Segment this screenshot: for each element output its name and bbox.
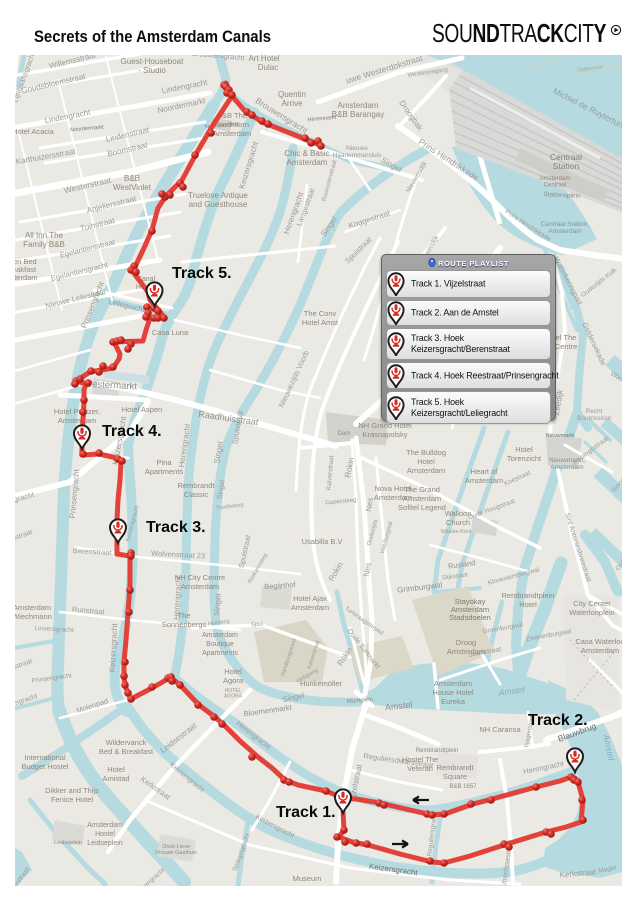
svg-text:Art Hotel: Art Hotel xyxy=(248,55,279,63)
svg-text:Museum: Museum xyxy=(293,874,322,883)
svg-text:WalloonChurch: WalloonChurch xyxy=(445,509,472,527)
svg-text:QuentinArrive: QuentinArrive xyxy=(278,90,306,108)
svg-text:Hotel Amst: Hotel Amst xyxy=(302,318,339,327)
svg-text:Hunkemöller: Hunkemöller xyxy=(300,679,343,688)
svg-text:Rembrandtplein: Rembrandtplein xyxy=(416,748,458,754)
svg-text:- Studio: - Studio xyxy=(138,66,166,75)
svg-text:Usabilla B.V: Usabilla B.V xyxy=(302,537,343,546)
svg-text:Guest-Houseboat: Guest-Houseboat xyxy=(121,57,184,66)
svg-text:Chic & BasicAmsterdam: Chic & BasicAmsterdam xyxy=(284,149,329,167)
svg-text:Track 4.: Track 4. xyxy=(102,423,162,440)
svg-text:StayokayAmsterdamStadsdoelen: StayokayAmsterdamStadsdoelen xyxy=(449,597,491,622)
svg-text:NH City CentreAmsterdam: NH City CentreAmsterdam xyxy=(175,573,225,591)
svg-text:AmsterdamCentraal: AmsterdamCentraal xyxy=(540,176,571,189)
svg-text:All Inn TheFamily B&B: All Inn TheFamily B&B xyxy=(23,231,65,249)
svg-text:Hotel Pulitzer,Amsterdam: Hotel Pulitzer,Amsterdam xyxy=(54,407,100,425)
svg-text:el TheCentre: el TheCentre xyxy=(555,333,578,351)
svg-text:Spui: Spui xyxy=(251,621,263,628)
svg-text:AmsterdamWiechmann: AmsterdamWiechmann xyxy=(12,603,52,621)
svg-text:Track 1.: Track 1. xyxy=(276,804,336,821)
svg-text:Hotel AjaxAmsterdam: Hotel AjaxAmsterdam xyxy=(291,594,329,612)
svg-text:Dulac: Dulac xyxy=(258,63,278,72)
svg-text:NH Caransa: NH Caransa xyxy=(479,725,521,734)
svg-text:Dikker and ThijsFenice Hotel: Dikker and ThijsFenice Hotel xyxy=(45,786,99,804)
svg-text:Dam: Dam xyxy=(338,431,351,437)
svg-text:The Conv: The Conv xyxy=(304,309,337,318)
svg-text:The GrandAmsterdamSofitel Lege: The GrandAmsterdamSofitel Legend xyxy=(398,485,446,512)
svg-text:Truelove Antiqueand Guesthouse: Truelove Antiqueand Guesthouse xyxy=(188,191,248,209)
svg-text:Track 2.: Track 2. xyxy=(528,712,588,729)
svg-text:SOUNDTRACKCITY: SOUNDTRACKCITY xyxy=(432,18,606,48)
svg-text:Casa Luna: Casa Luna xyxy=(152,328,189,337)
svg-text:Secrets of the Amsterdam Canal: Secrets of the Amsterdam Canals xyxy=(34,27,271,46)
svg-text:Leidseplein: Leidseplein xyxy=(54,840,82,846)
svg-text:Hotel Acacia: Hotel Acacia xyxy=(12,127,55,136)
svg-text:Track 3.: Track 3. xyxy=(146,519,206,536)
svg-text:Track 5.: Track 5. xyxy=(172,265,232,282)
svg-text:Nieuwmarkt: Nieuwmarkt xyxy=(545,433,575,439)
svg-text:CentraalStation: CentraalStation xyxy=(550,152,582,171)
svg-text:AmsterdamB&B Barangay: AmsterdamB&B Barangay xyxy=(332,101,384,119)
svg-text:City CenterWaterlooplein: City CenterWaterlooplein xyxy=(569,599,615,617)
svg-text:AmsterdamBoutiqueApartments: AmsterdamBoutiqueApartments xyxy=(202,632,238,657)
svg-text:HOTELAGORA: HOTELAGORA xyxy=(224,688,243,700)
svg-text:Waalse Kerk: Waalse Kerk xyxy=(441,529,472,535)
svg-text:WildervanckBed & Breakfast: WildervanckBed & Breakfast xyxy=(99,738,154,756)
svg-text:Casa WaterlooAmsterdam: Casa WaterlooAmsterdam xyxy=(575,637,624,655)
svg-text:HotelAgora: HotelAgora xyxy=(223,667,244,685)
svg-text:B&B 1657: B&B 1657 xyxy=(449,784,477,790)
svg-text:Hotel Aspen: Hotel Aspen xyxy=(122,405,162,414)
svg-text:InternationalBudget Hostel: InternationalBudget Hostel xyxy=(21,753,68,771)
